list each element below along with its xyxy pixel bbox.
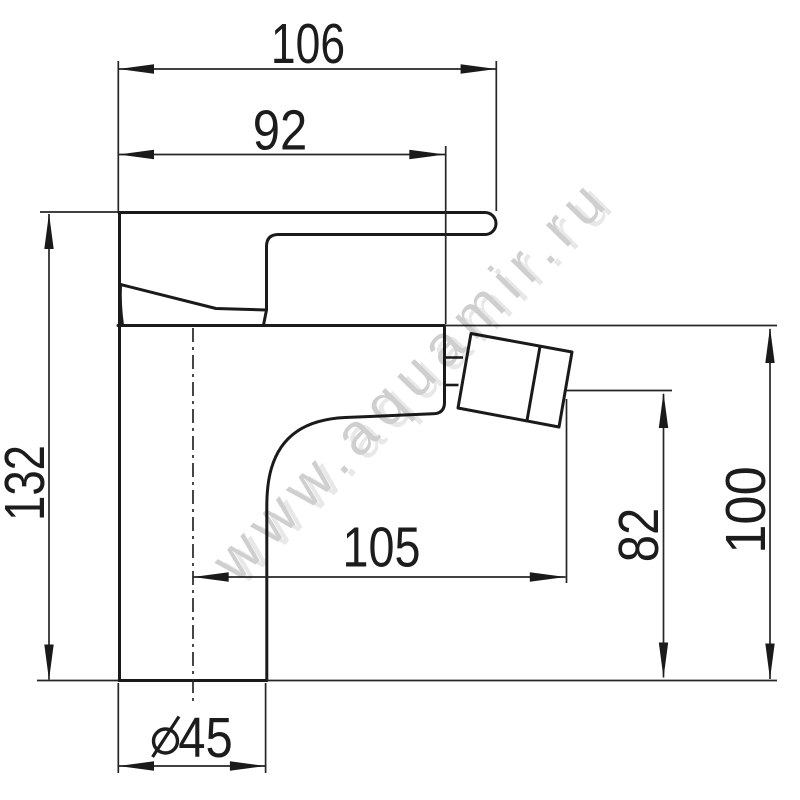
svg-text:132: 132: [0, 445, 56, 521]
svg-text:105: 105: [343, 516, 421, 579]
svg-text:92: 92: [253, 99, 308, 162]
svg-text:106: 106: [271, 12, 345, 76]
svg-text:45: 45: [178, 707, 233, 770]
svg-text:82: 82: [608, 508, 671, 563]
svg-text:100: 100: [713, 466, 778, 553]
